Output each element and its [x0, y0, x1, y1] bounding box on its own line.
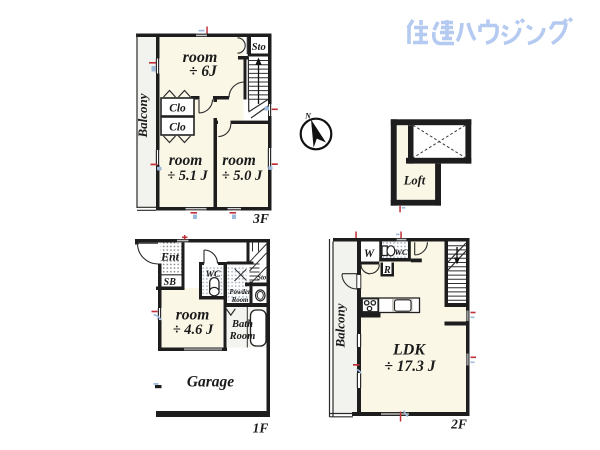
svg-text:room: room [222, 152, 256, 169]
svg-text:R: R [383, 265, 391, 276]
svg-text:LDK: LDK [392, 342, 426, 359]
svg-text:÷ 5.1 J: ÷ 5.1 J [167, 168, 208, 184]
svg-text:room: room [176, 307, 210, 324]
svg-text:W: W [364, 248, 375, 260]
svg-text:WC: WC [394, 247, 408, 257]
svg-text:Balcony: Balcony [333, 303, 348, 348]
svg-text:÷ 17.3 J: ÷ 17.3 J [384, 358, 436, 375]
svg-text:Clo: Clo [169, 122, 186, 134]
svg-text:1F: 1F [253, 421, 269, 436]
svg-text:Sto: Sto [252, 42, 266, 53]
svg-text:Room: Room [231, 297, 249, 304]
svg-text:Garage: Garage [187, 374, 234, 391]
svg-text:Sto: Sto [257, 275, 267, 282]
svg-text:Clo: Clo [169, 103, 186, 115]
svg-text:3F: 3F [252, 211, 269, 226]
svg-text:÷ 6J: ÷ 6J [189, 63, 218, 80]
svg-text:Bath: Bath [231, 319, 253, 330]
svg-text:Powder: Powder [229, 289, 250, 296]
svg-text:Room: Room [229, 331, 256, 342]
svg-text:Loft: Loft [403, 174, 426, 188]
svg-text:Ent: Ent [160, 250, 180, 264]
svg-text:Balcony: Balcony [135, 93, 150, 138]
svg-text:÷ 4.6 J: ÷ 4.6 J [173, 322, 214, 338]
svg-text:SB: SB [164, 277, 177, 288]
svg-text:2F: 2F [450, 417, 467, 432]
svg-text:room: room [169, 152, 203, 169]
svg-text:÷ 5.0 J: ÷ 5.0 J [222, 168, 263, 184]
